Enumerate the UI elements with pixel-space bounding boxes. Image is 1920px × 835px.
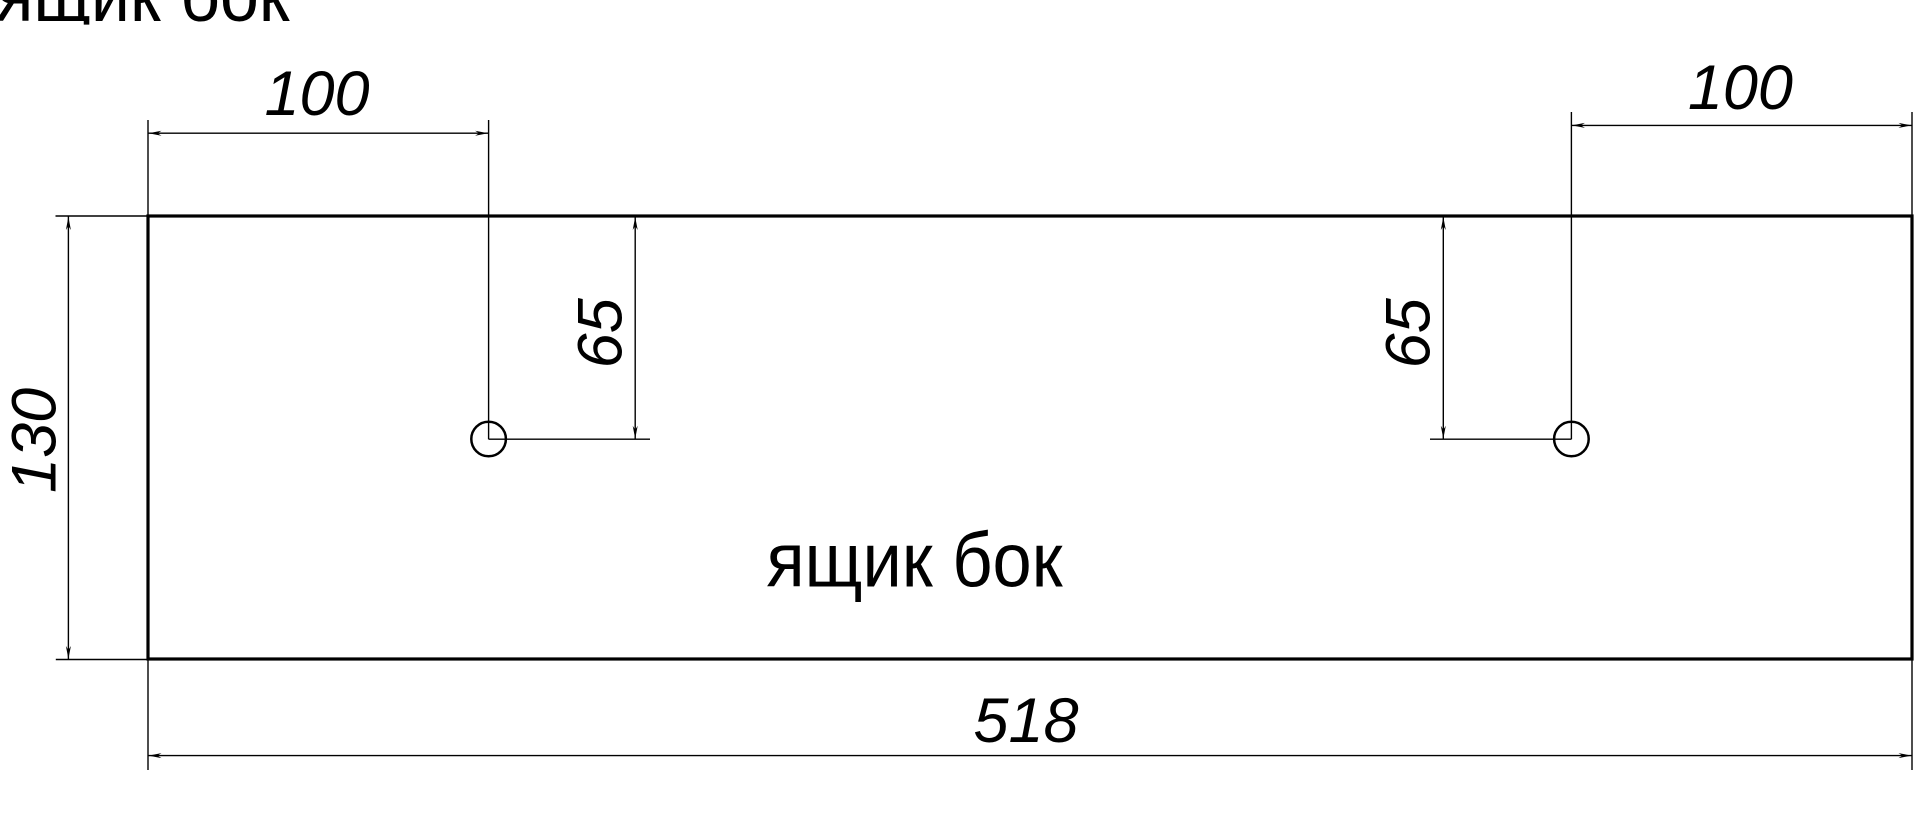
svg-text:518: 518: [973, 686, 1078, 756]
svg-text:130: 130: [0, 388, 69, 493]
svg-text:100: 100: [1688, 53, 1793, 123]
svg-text:65: 65: [565, 297, 635, 368]
svg-text:100: 100: [264, 59, 369, 129]
svg-text:65: 65: [1373, 297, 1443, 368]
svg-text:ящик бок: ящик бок: [767, 517, 1064, 603]
